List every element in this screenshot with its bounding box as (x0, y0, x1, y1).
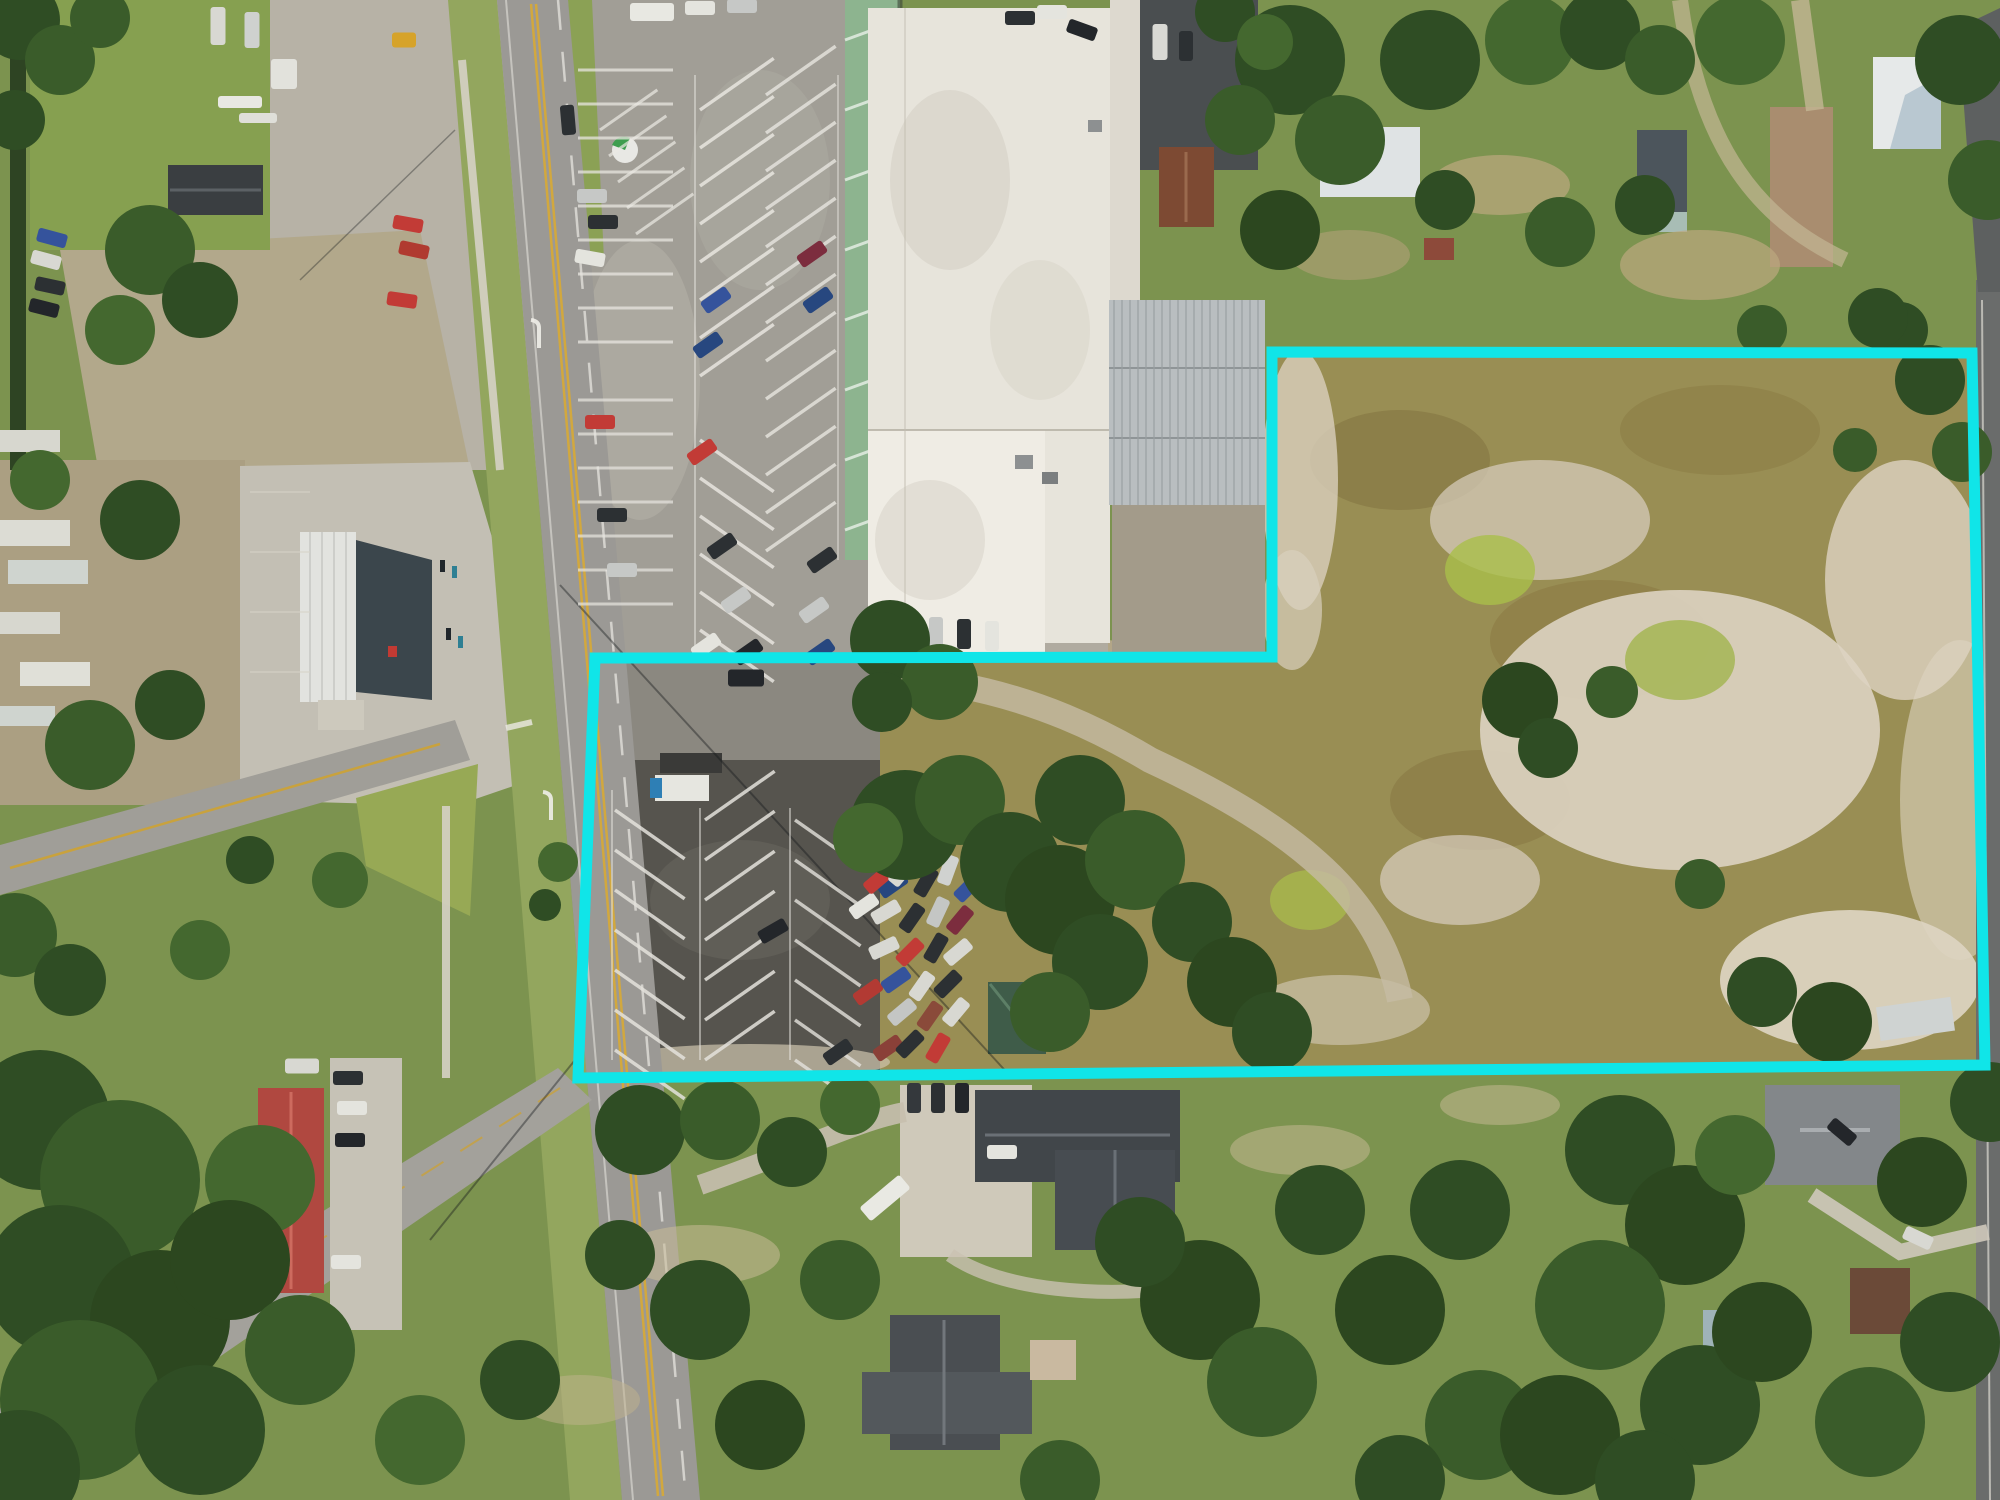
car (955, 1083, 969, 1113)
tree (45, 700, 135, 790)
car (245, 12, 260, 48)
parking-strip-redbldg (330, 1058, 402, 1330)
car (335, 1133, 365, 1147)
car (727, 0, 757, 13)
tree (1900, 1292, 2000, 1392)
tree (480, 1340, 560, 1420)
tree (1335, 1255, 1445, 1365)
tree (135, 670, 205, 740)
tree (1877, 1137, 1967, 1227)
tree (1615, 175, 1675, 235)
dirt-patch-ne (1620, 230, 1780, 300)
rooftop-unit (1042, 472, 1058, 484)
car (585, 415, 615, 429)
car (597, 508, 627, 522)
box-truck-cab (650, 778, 662, 798)
tree (162, 262, 238, 338)
car (957, 619, 971, 649)
trailer-home (0, 520, 70, 546)
tree (1695, 1115, 1775, 1195)
car (560, 104, 577, 135)
car (333, 1071, 363, 1085)
trailer-home (0, 612, 60, 634)
tree (226, 836, 274, 884)
car (337, 1101, 367, 1115)
motorcycle (452, 566, 457, 578)
hedge-left-edge (10, 0, 26, 470)
car (907, 1083, 921, 1113)
tree (1932, 422, 1992, 482)
car (331, 1255, 361, 1269)
tree (1712, 1282, 1812, 1382)
roof-ne-red (1424, 238, 1454, 260)
car (1005, 11, 1035, 25)
box-truck-canopy-shadow (660, 753, 722, 773)
tree (757, 1117, 827, 1187)
car (1037, 5, 1067, 19)
box-truck (655, 775, 709, 801)
car (392, 33, 416, 48)
tree (170, 1200, 290, 1320)
store-concrete-pad (318, 700, 364, 730)
tree (680, 1080, 760, 1160)
car (985, 621, 999, 651)
tree (820, 1075, 880, 1135)
tree (1275, 1165, 1365, 1255)
tree (245, 1295, 355, 1405)
tree (1675, 859, 1725, 909)
tree (1380, 10, 1480, 110)
store-red-object (388, 646, 397, 657)
tree (312, 852, 368, 908)
store-white-roof (300, 532, 356, 702)
tree (1205, 85, 1275, 155)
house2-roof-wing (862, 1372, 1032, 1434)
scrub-mottle (1620, 385, 1820, 475)
tree (1518, 718, 1578, 778)
lawn-mottle-south (1230, 1125, 1370, 1175)
tree (585, 1220, 655, 1290)
car (218, 96, 262, 108)
tree (1625, 25, 1695, 95)
car (630, 3, 674, 21)
roof-mottle (875, 480, 985, 600)
tree (1237, 14, 1293, 70)
roof-mottle (990, 260, 1090, 400)
tree (100, 480, 180, 560)
car (931, 1083, 945, 1113)
car (929, 617, 943, 647)
tree (595, 1085, 685, 1175)
store-shadow (356, 540, 432, 700)
tree (1848, 288, 1908, 348)
trailer-home (0, 706, 55, 726)
tree (529, 889, 561, 921)
tree (1535, 1240, 1665, 1370)
aerial-photo (0, 0, 2000, 1500)
motorcycle (446, 628, 451, 640)
tree (170, 920, 230, 980)
tree (852, 672, 912, 732)
bright-grass-patch (1445, 535, 1535, 605)
tree (34, 944, 106, 1016)
tree (1010, 972, 1090, 1052)
car (607, 563, 637, 577)
car (728, 670, 764, 687)
stripmall-white-wing (1110, 0, 1140, 300)
asphalt-wear (650, 840, 830, 960)
service-yard (1112, 505, 1265, 655)
tree (1833, 428, 1877, 472)
tree (1240, 190, 1320, 270)
trailer-home (8, 560, 88, 584)
paver-path (1030, 1340, 1076, 1380)
roof-mottle (890, 90, 1010, 270)
car (685, 1, 715, 15)
tree (1525, 197, 1595, 267)
car (211, 7, 226, 45)
tree (1295, 95, 1385, 185)
car (285, 1059, 319, 1074)
tree (85, 295, 155, 365)
motorcycle (440, 560, 445, 572)
car (588, 215, 618, 229)
tree (1207, 1327, 1317, 1437)
tree (1727, 957, 1797, 1027)
tree (1415, 170, 1475, 230)
trailer-home (0, 430, 60, 452)
tree (1232, 992, 1312, 1072)
sand-patch (1380, 835, 1540, 925)
tree (1410, 1160, 1510, 1260)
tree (10, 450, 70, 510)
tree (538, 842, 578, 882)
tree (833, 803, 903, 873)
car (239, 113, 277, 123)
car (271, 59, 297, 89)
rooftop-unit (1088, 120, 1102, 132)
motorcycle (458, 636, 463, 648)
car (1179, 31, 1193, 61)
tree (1792, 982, 1872, 1062)
car (987, 1145, 1017, 1159)
tree (1586, 666, 1638, 718)
car (1153, 24, 1168, 60)
bright-grass-patch (1625, 620, 1735, 700)
tree (800, 1240, 880, 1320)
trailer-home (20, 662, 90, 686)
tree (1815, 1367, 1925, 1477)
tree (650, 1260, 750, 1360)
house4-brown-roof (1850, 1268, 1910, 1334)
rooftop-unit (1015, 455, 1033, 469)
tree (1095, 1197, 1185, 1287)
lawn-mottle-south (1440, 1085, 1560, 1125)
tree (715, 1380, 805, 1470)
tree (375, 1395, 465, 1485)
tree (135, 1365, 265, 1495)
car (577, 189, 607, 203)
aerial-scene-svg (0, 0, 2000, 1500)
